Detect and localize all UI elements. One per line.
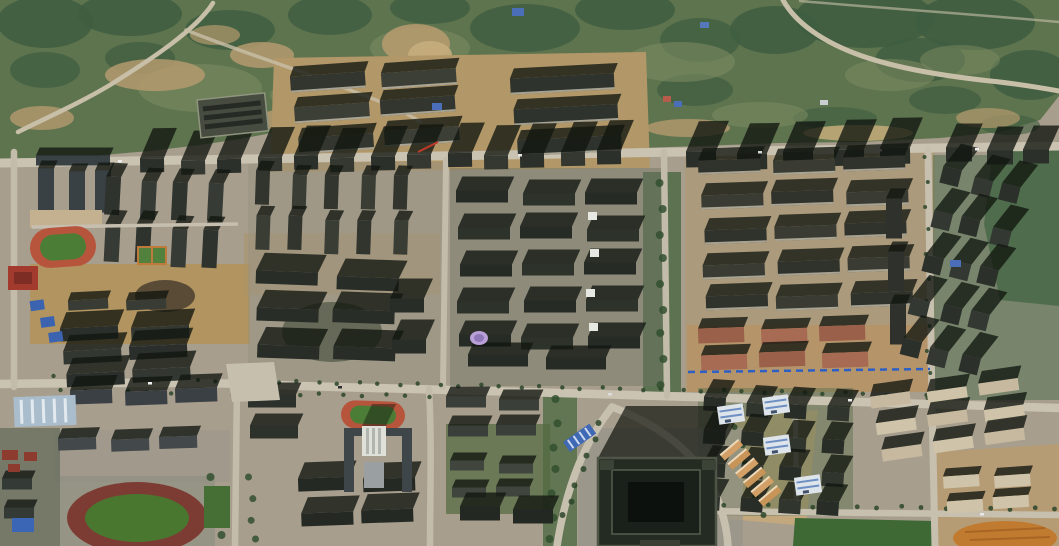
garden-compound-bottom-building (513, 510, 553, 524)
tree (820, 392, 824, 396)
garden-compound-north-shadow (446, 387, 491, 397)
white-tower-tops (590, 249, 599, 257)
tree (780, 389, 784, 393)
hill-sheds (512, 8, 524, 16)
tree (925, 349, 929, 353)
central-compound-grid-shadow (521, 324, 579, 338)
red-sheds (2, 450, 18, 460)
tree (479, 383, 483, 387)
tree (537, 384, 541, 388)
basketball-courts (139, 248, 151, 263)
central-compound-grid-shadow (458, 214, 516, 228)
midwest-compound-south-building (336, 276, 398, 291)
tree (169, 391, 173, 395)
forest-blobs (10, 52, 80, 88)
tree (317, 391, 321, 395)
tree (415, 381, 419, 385)
civic-building-complex (640, 540, 680, 546)
tree (855, 504, 860, 509)
garden-compound-south-shadow (496, 479, 534, 487)
school-complex-south (364, 462, 384, 488)
blue-roof-sheds-west (30, 299, 45, 311)
southeast-towers-building (816, 501, 839, 517)
midwest-compound-south-building (257, 345, 319, 360)
tower-row-far-east-building (1023, 150, 1049, 164)
tree (659, 205, 667, 213)
school-wings (38, 161, 115, 214)
satellite-imagery[interactable] (0, 0, 1059, 546)
tree (403, 394, 407, 398)
garden-compound-south-building (499, 464, 533, 474)
redbrick-rows (698, 313, 873, 373)
central-compound-grid-building (586, 300, 638, 312)
white-tower-tops (589, 323, 598, 331)
tower-row-main-road-west-building (561, 152, 585, 166)
tree (874, 506, 879, 511)
central-compound-grid-building (587, 230, 639, 242)
walled-compound (197, 93, 269, 138)
tree (358, 380, 362, 384)
tree (601, 385, 605, 389)
midwest-compound-south-shadow (257, 289, 328, 309)
west-residential-slabs-building (201, 230, 218, 269)
corner-construction-building (943, 474, 980, 488)
south-mid-slabs-lower-building (301, 512, 353, 527)
midwest-compound-south-building (256, 270, 318, 285)
purple-pool (474, 334, 484, 342)
school-complex-south (402, 428, 412, 492)
garden-compound-north-building (446, 397, 486, 408)
tree (899, 504, 904, 509)
central-compound-south-row-shadow (546, 346, 611, 358)
tree (923, 205, 927, 209)
red-sheds (8, 464, 20, 472)
west-slab-rows-shadow (128, 328, 194, 347)
hill-sheds (820, 100, 828, 105)
tree (656, 231, 664, 239)
white-blue-cluster-c (763, 434, 791, 455)
tree (656, 179, 664, 187)
green-courts-east-of-stadium (204, 486, 230, 528)
red-sheds (24, 452, 37, 461)
vehicles (148, 382, 152, 385)
corner-construction-building (992, 495, 1029, 509)
redbrick-rows-shadow (701, 344, 752, 356)
midwest-compound-south-shadow (257, 327, 328, 347)
east-construction-rows-shadow (843, 143, 911, 157)
midwest-towers-east-building (390, 299, 424, 313)
garden-compound-north-shadow (499, 390, 544, 400)
tree (577, 387, 581, 391)
tree (58, 388, 62, 392)
blue-roof-sheds-west (40, 316, 55, 328)
central-compound-grid (456, 177, 646, 350)
central-compound-grid-building (456, 191, 508, 203)
white-blue-cluster-d (794, 474, 822, 495)
midwest-compound-south-building (333, 346, 395, 361)
southeast-towers-building (821, 439, 844, 455)
basketball-courts (137, 246, 167, 265)
midwest-compound-south-shadow (256, 252, 327, 272)
tree (928, 371, 932, 375)
midwest-compound-north-building (324, 175, 339, 209)
west-slab-rows-shadow (131, 350, 197, 369)
tower-row-main-road-west-building (484, 155, 508, 169)
south-mid-slabs-lower-building (361, 509, 413, 524)
red-roof-building (8, 266, 38, 290)
midwest-compound-north-building (287, 216, 302, 250)
vertical-road-c (443, 160, 446, 387)
southeast-towers-building (827, 406, 850, 422)
tree (581, 466, 587, 472)
tree (439, 383, 443, 387)
hill-dirt-patches (105, 59, 205, 91)
redbrick-rows-building (759, 351, 805, 368)
tree (584, 453, 590, 459)
tree (552, 465, 560, 473)
tree (656, 329, 664, 337)
vehicles (980, 513, 984, 516)
hill-sheds (432, 103, 442, 110)
tree (926, 180, 930, 184)
central-compound-grid-building (520, 227, 572, 239)
central-compound-grid-shadow (460, 251, 518, 265)
tree (919, 505, 924, 510)
south-mid-slabs-lower-shadow (361, 492, 421, 510)
campus-row-a-building (70, 389, 112, 404)
red-roof-building (14, 272, 32, 284)
west-residential-slabs-building (170, 229, 187, 268)
white-tower-tops (586, 289, 595, 297)
hill-sheds (663, 96, 671, 102)
tree (1052, 507, 1057, 512)
garden-compound-south-building (450, 461, 484, 471)
tree (384, 392, 388, 396)
east-construction-rows-shadow (705, 282, 773, 296)
school-wings-building (38, 169, 54, 211)
forest-blobs (470, 4, 580, 52)
west-residential-slabs-building (104, 176, 121, 215)
south-mid-slabs-lower-shadow (301, 495, 361, 513)
vehicles (338, 386, 342, 389)
tree (560, 385, 564, 389)
campus-row-b-building (159, 436, 197, 449)
tree (252, 536, 259, 543)
intersection-plaza (226, 362, 280, 402)
vehicles (518, 154, 522, 157)
tree (721, 503, 726, 508)
tree (550, 444, 558, 452)
tree (926, 227, 930, 231)
white-blue-cluster-a (717, 403, 745, 424)
garden-compound-bottom-building (460, 507, 500, 521)
west-residential-slabs-building (207, 183, 224, 222)
east-construction-rows-shadow (702, 251, 770, 265)
central-compound-grid-shadow (522, 250, 580, 264)
vertical-road-b (429, 389, 431, 546)
edge-low-blocks-shadow (4, 500, 38, 508)
redbrick-rows-building (819, 325, 865, 342)
garden-compound-north-building (496, 425, 536, 436)
campus-row-b-shadow (159, 426, 202, 437)
tree (207, 473, 215, 481)
tree (218, 531, 226, 539)
tree (596, 420, 602, 426)
tree (552, 395, 560, 403)
redbrick-rows-shadow (761, 318, 812, 330)
running-track-north (39, 232, 87, 261)
redbrick-rows-building (822, 352, 868, 369)
redbrick-rows-building (701, 354, 747, 371)
school-complex-south (366, 428, 369, 454)
midwest-compound-north-building (255, 215, 270, 249)
tree (341, 393, 345, 397)
west-slab-rows-shadow (59, 309, 125, 328)
central-compound-grid-shadow (457, 288, 515, 302)
tree (618, 387, 622, 391)
east-construction-rows-shadow (774, 213, 842, 227)
blue-pool (12, 518, 34, 532)
east-construction-rows-shadow (698, 146, 766, 160)
southeast-towers-building (741, 431, 764, 447)
east-construction-rows-shadow (771, 178, 839, 192)
tree (245, 474, 252, 481)
tower-row-main-road-west-building (597, 150, 621, 164)
vehicles (118, 160, 122, 163)
running-track-north (29, 225, 98, 270)
east-construction-rows-shadow (701, 181, 769, 195)
south-mid-slabs-shadow (250, 414, 303, 426)
tree (699, 389, 703, 393)
central-compound-grid-shadow (459, 321, 517, 335)
tree (1033, 505, 1038, 510)
garden-compound-north-shadow (496, 415, 541, 425)
campus-row-b-building (111, 438, 149, 451)
tree (560, 512, 566, 518)
redbrick-rows-building (698, 327, 744, 344)
west-slab-rows-shadow (130, 308, 196, 327)
central-compound-grid-shadow (585, 179, 643, 193)
midwest-compound-north-building (393, 220, 408, 254)
garden-compound-bottom-shadow (460, 493, 506, 507)
central-compound-grid-shadow (523, 180, 581, 194)
hill-sheds (950, 260, 961, 267)
civic-building-complex (702, 460, 716, 470)
west-low-rises-building (126, 298, 166, 310)
central-compound-grid-building (585, 193, 637, 205)
east-construction-rows-shadow (775, 283, 843, 297)
tree (810, 505, 815, 510)
basketball-courts (153, 248, 165, 263)
south-mid-slabs-building (250, 426, 298, 439)
redbrick-rows-shadow (822, 342, 873, 354)
vehicles (848, 399, 852, 402)
campus-row-a-shadow (69, 375, 118, 391)
school-north-bar-shadow (36, 148, 114, 156)
tree (51, 374, 55, 378)
tree (923, 155, 927, 159)
tree (656, 280, 664, 288)
school-wings-building (69, 172, 85, 214)
tower-row-main-road-west-building (520, 153, 544, 167)
blue-warehouse (13, 395, 76, 427)
midwest-compound-north-building (255, 170, 270, 204)
tree (398, 383, 402, 387)
civic-building-complex (628, 482, 684, 522)
tree (657, 381, 665, 389)
central-compound-grid-building (522, 264, 574, 276)
campus-row-b-shadow (111, 428, 154, 439)
tree (546, 535, 554, 543)
green-zones (793, 518, 935, 546)
intersection-plaza (226, 362, 280, 402)
west-low-rises-building (68, 299, 108, 311)
midwest-towers-east-building (392, 340, 426, 354)
vehicles (758, 151, 762, 154)
vehicles (608, 393, 612, 396)
midwest-compound-south-building (332, 309, 394, 324)
central-compound-grid-building (460, 265, 512, 277)
west-residential-slabs-building (171, 182, 188, 221)
tree (861, 392, 865, 396)
tree (641, 388, 645, 392)
west-residential-slabs-building (104, 223, 121, 262)
vehicles (975, 148, 979, 151)
tree (298, 393, 302, 397)
garden-compound-north-shadow (448, 416, 493, 426)
tree (739, 389, 743, 393)
tree (249, 495, 256, 502)
vehicles (298, 157, 302, 160)
campus-row-a-building (175, 387, 217, 402)
school-complex-south (378, 428, 381, 454)
blue-roof-sheds-west (48, 331, 63, 343)
midwest-compound-north-building (292, 175, 307, 209)
campus-row-a-shadow (174, 373, 223, 389)
blue-pool (12, 518, 34, 532)
stadium-track (85, 494, 189, 542)
school-complex-south (344, 428, 354, 492)
south-mid-slabs-lower-building (298, 477, 350, 492)
midwest-compound-north-building (393, 175, 408, 209)
central-compound-grid-building (584, 263, 636, 275)
east-construction-rows-shadow (777, 248, 845, 262)
east-compound-edge-building (886, 199, 902, 239)
central-compound-grid-shadow (456, 177, 514, 191)
edge-low-blocks-building (2, 479, 32, 490)
campus-row-b-shadow (58, 427, 101, 438)
tree (496, 384, 500, 388)
garden-compound-south-shadow (450, 453, 488, 461)
west-slab-rows-shadow (62, 332, 128, 351)
tree (554, 419, 562, 427)
midwest-compound-south-shadow (337, 258, 408, 278)
garden-compound-south-shadow (499, 456, 537, 464)
central-compound-grid-building (458, 228, 510, 240)
tree (317, 380, 321, 384)
tree (659, 254, 667, 262)
green-courts-east-of-stadium (204, 486, 230, 528)
central-compound-grid-shadow (520, 213, 578, 227)
purple-pool (470, 331, 488, 345)
midwest-compound-north-building (324, 220, 339, 254)
southeast-towers-building (778, 499, 801, 515)
vertical-road-a (235, 387, 237, 546)
tree (520, 385, 524, 389)
midwest-compound-south-building (256, 307, 318, 322)
midwest-compound-north-building (361, 175, 376, 209)
central-compound-grid-building (457, 302, 509, 314)
redbrick-rows-shadow (758, 341, 809, 353)
white-blue-cluster-b (762, 394, 790, 415)
school-complex-south (372, 428, 375, 454)
corner-construction-building (947, 499, 984, 513)
garden-compound-bottom-shadow (513, 496, 559, 510)
tree (682, 388, 686, 392)
tree (360, 394, 364, 398)
civic-building-complex (600, 460, 614, 470)
campus-row-a-building (125, 390, 167, 405)
tree (572, 482, 578, 488)
garden-compound-north-building (448, 426, 488, 437)
corner-construction-building (994, 474, 1031, 488)
tree (335, 382, 339, 386)
garden-compound-south-shadow (452, 480, 490, 488)
east-construction-rows-shadow (704, 216, 772, 230)
east-construction-rows-shadow (850, 279, 918, 293)
central-compound-grid-building (524, 301, 576, 313)
central-compound-grid-building (523, 194, 575, 206)
vehicles (878, 149, 882, 152)
midwest-compound-north-building (356, 220, 371, 254)
white-tower-tops (588, 212, 597, 220)
redbrick-rows-shadow (698, 317, 749, 329)
central-compound-south-row-building (546, 358, 606, 370)
east-construction-rows (698, 141, 919, 313)
campus-row-b-building (58, 437, 96, 450)
edge-low-blocks-building (4, 508, 34, 519)
redbrick-rows-shadow (819, 315, 870, 327)
hill-sheds (674, 101, 682, 107)
hill-sheds (700, 22, 709, 28)
tree (593, 436, 599, 442)
tree (988, 506, 993, 511)
central-compound-grid-shadow (524, 287, 582, 301)
tree (761, 512, 767, 518)
tree (427, 395, 431, 399)
tree (569, 499, 575, 505)
garden-compound-north-building (499, 400, 539, 411)
tree (659, 355, 667, 363)
tree (375, 381, 379, 385)
tree (659, 306, 667, 314)
west-slab-rows-shadow (65, 355, 131, 374)
tree (248, 517, 255, 524)
central-compound-south-row-building (468, 355, 528, 367)
east-construction-rows-shadow (773, 147, 841, 161)
east-compound-edge-building (888, 252, 904, 292)
satellite-map-canvas[interactable] (0, 0, 1059, 546)
tower-row-main-road-west-building (448, 153, 472, 167)
